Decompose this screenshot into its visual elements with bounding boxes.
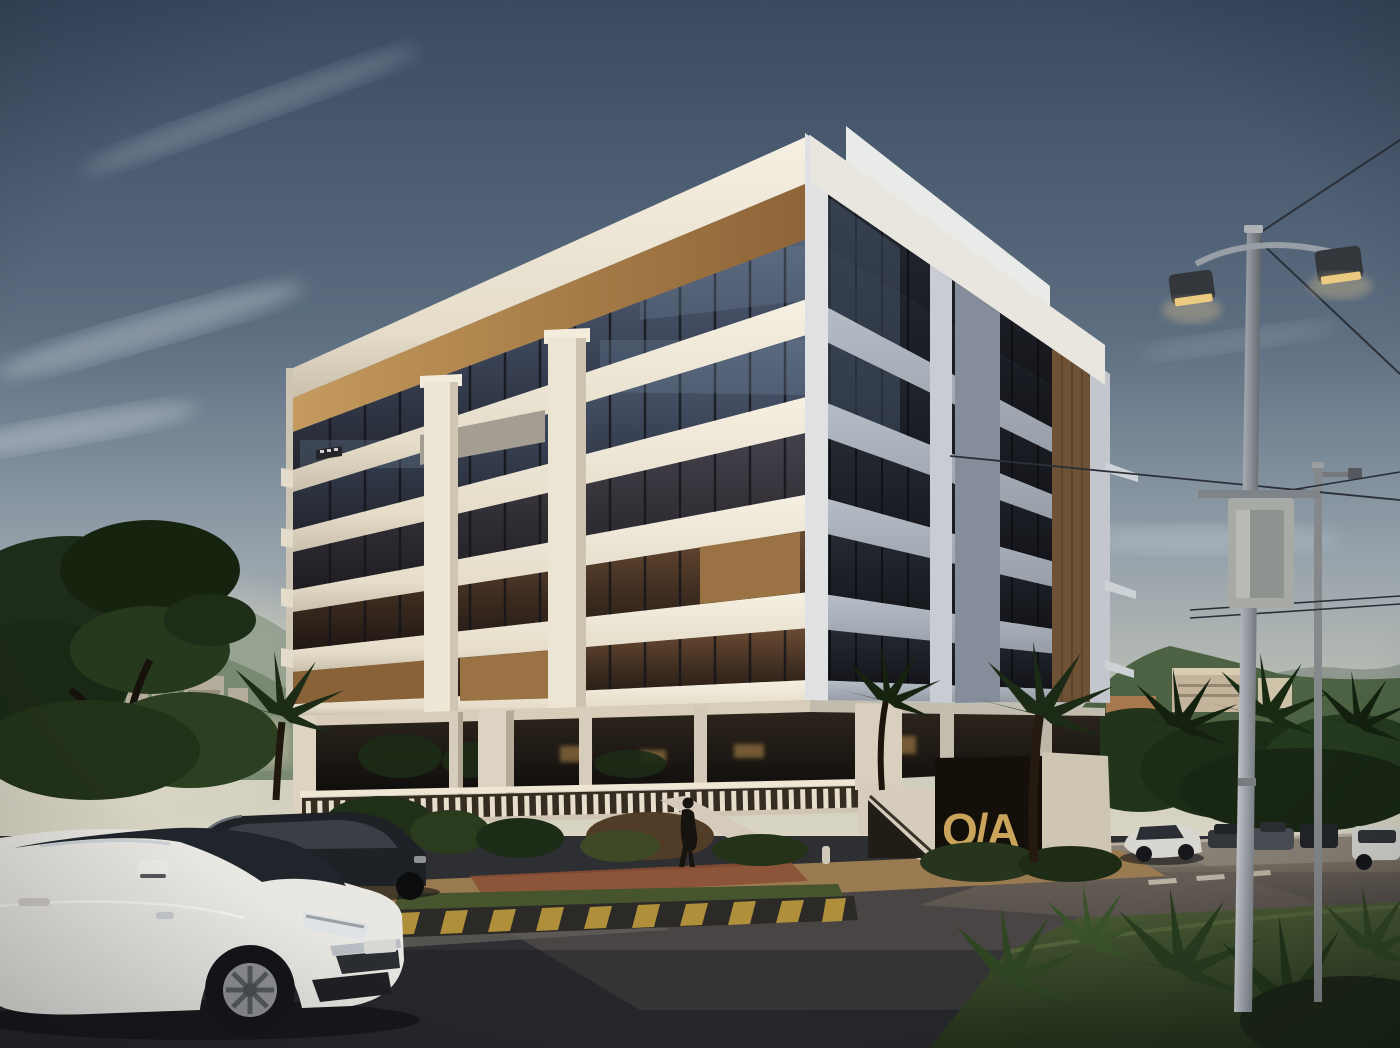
architectural-render-scene: O/A [0, 0, 1400, 1048]
vignette-overlay [0, 0, 1400, 1048]
scene-canvas: O/A [0, 0, 1400, 1048]
